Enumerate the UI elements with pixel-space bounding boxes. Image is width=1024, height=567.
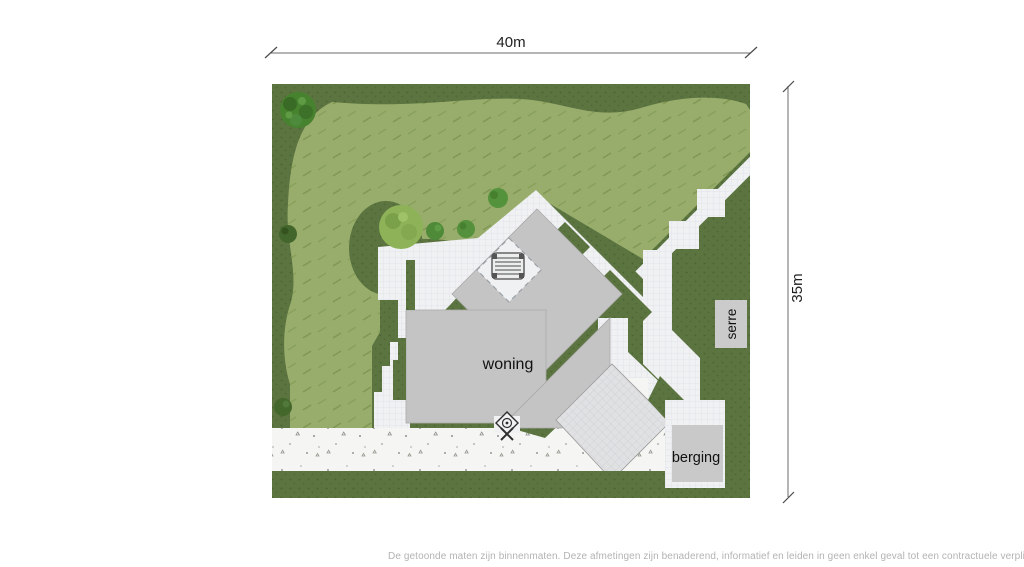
house-label: woning <box>482 356 534 373</box>
conservatory-label: serre <box>724 309 739 340</box>
site-plan-page: 40m 35m <box>0 0 1024 567</box>
gate-landing <box>669 221 699 249</box>
dimension-height-label: 35m <box>789 273 806 302</box>
tree-icon <box>379 205 423 249</box>
planting-strip <box>406 260 415 310</box>
dark-shrub-icon <box>279 225 297 243</box>
dimension-top: 40m <box>265 34 757 58</box>
big-tree-icon <box>280 92 316 128</box>
dimension-right: 35m <box>783 81 806 503</box>
dimension-width-label: 40m <box>496 34 525 51</box>
site-plan-figure: 40m 35m <box>0 0 1024 567</box>
shrub-icon <box>488 188 508 208</box>
gate-landing <box>697 189 725 217</box>
shrub-icon <box>426 222 444 240</box>
shrub-icon <box>457 220 475 238</box>
dark-shrub-icon <box>274 398 292 416</box>
shed-label: berging <box>672 450 720 466</box>
car-icon <box>492 253 524 279</box>
site-plan: serre woning berging <box>272 84 756 498</box>
disclaimer-text: De getoonde maten zijn binnenmaten. Deze… <box>388 551 1024 562</box>
